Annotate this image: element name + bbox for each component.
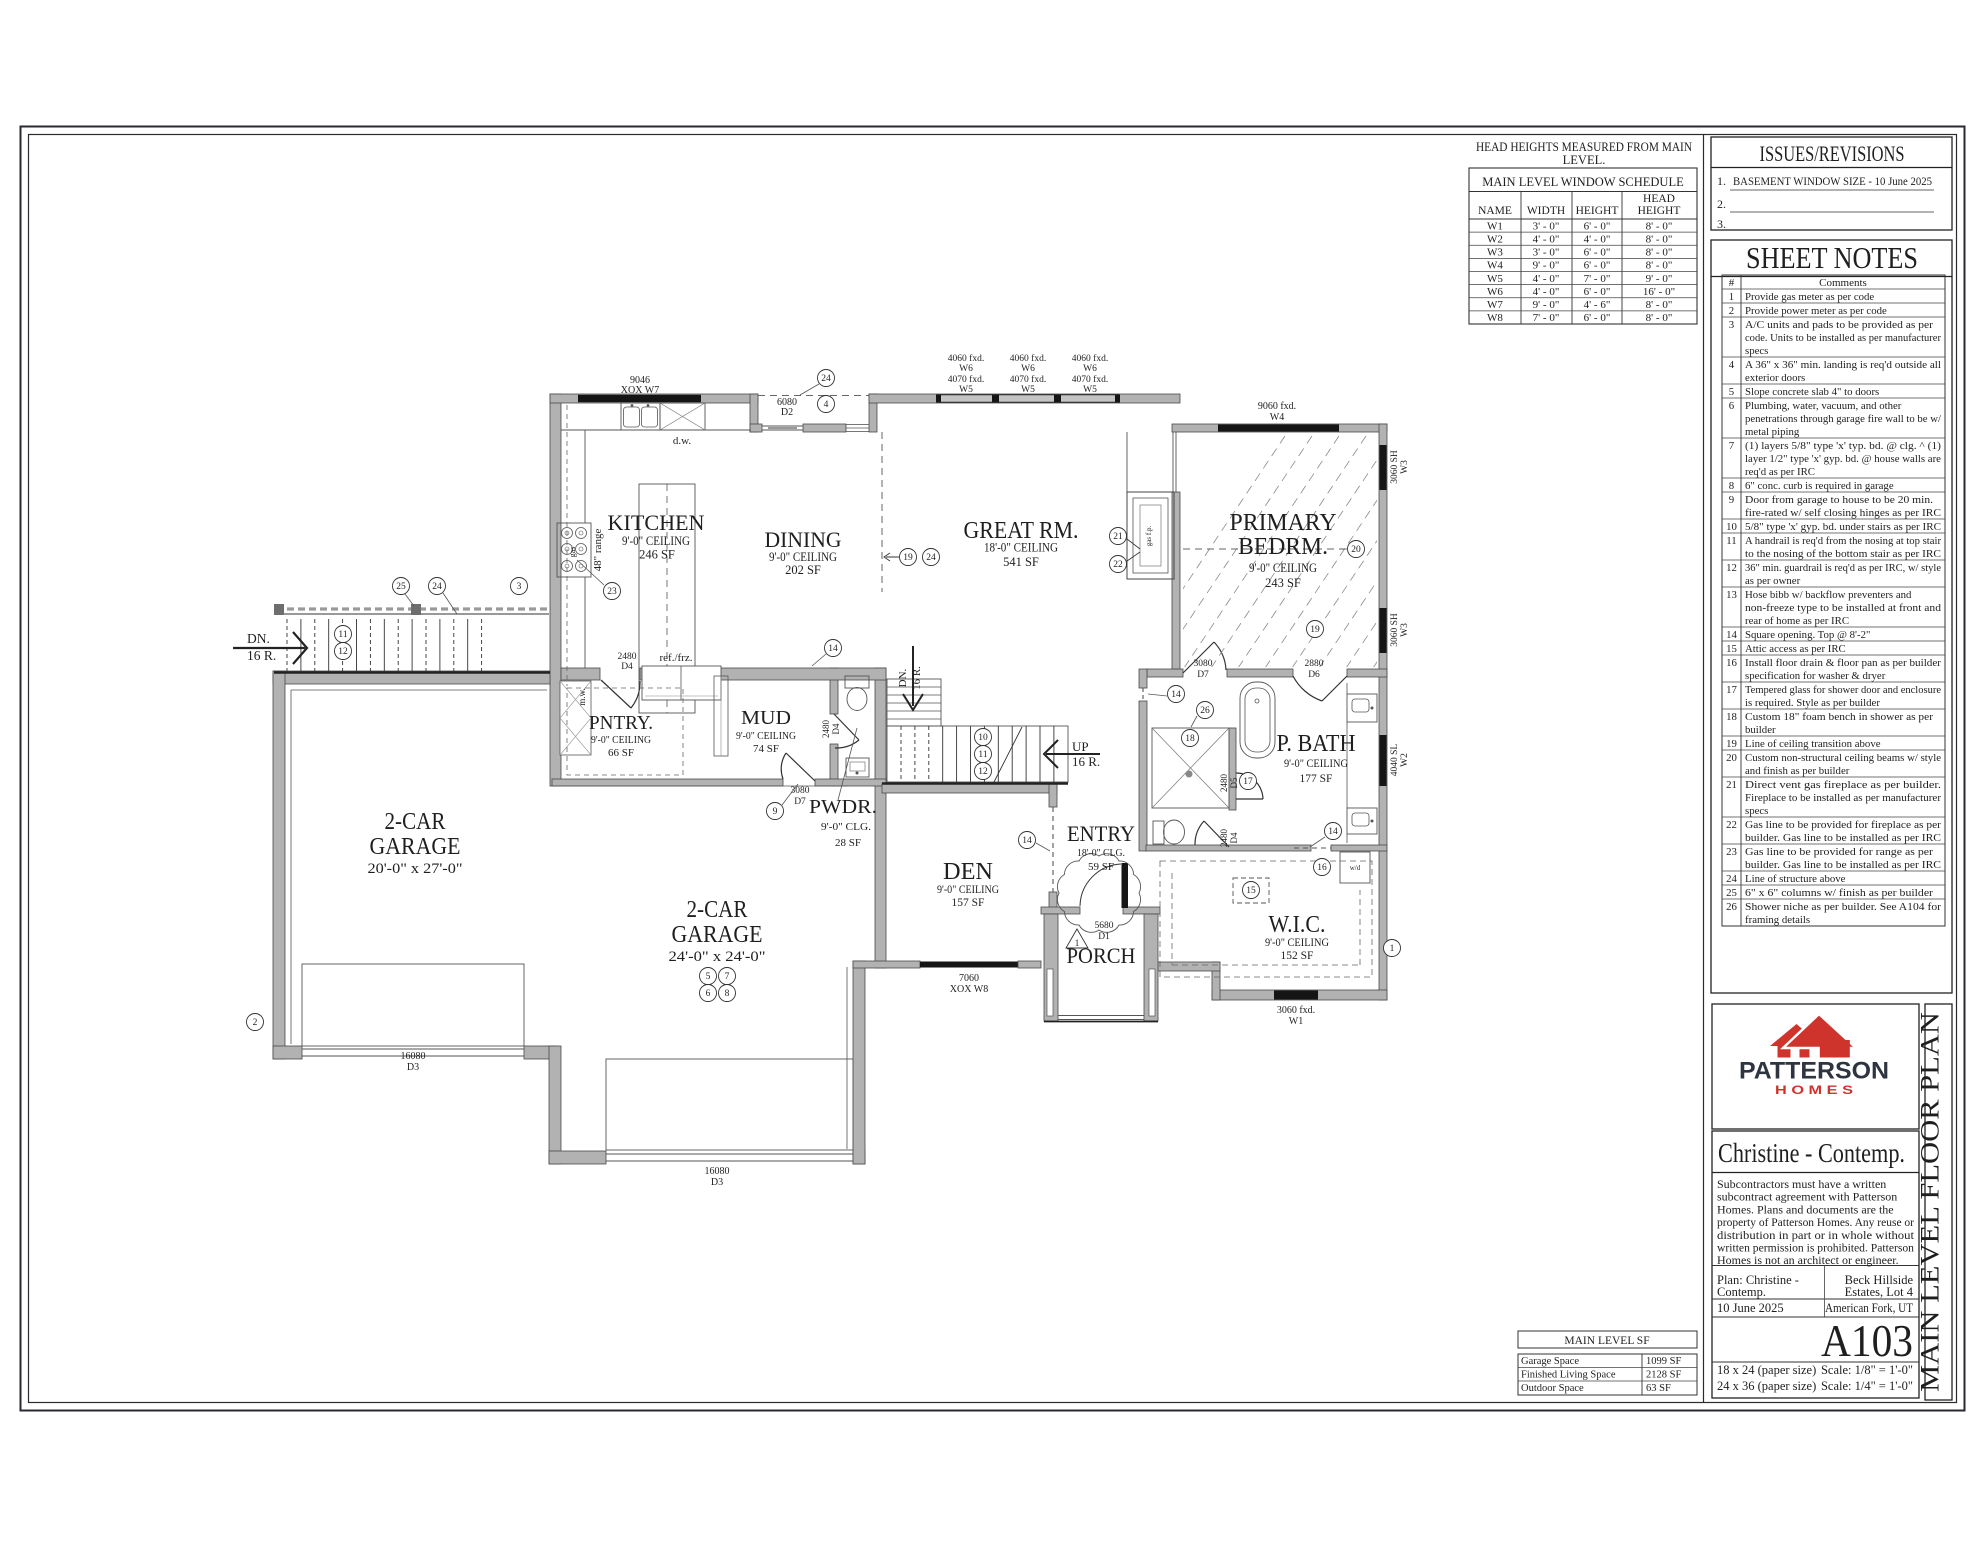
svg-text:BASEMENT WINDOW SIZE - 10 June: BASEMENT WINDOW SIZE - 10 June 2025 [1733, 174, 1932, 188]
svg-text:5/8" type 'x' gyp. bd. under s: 5/8" type 'x' gyp. bd. under stairs as p… [1745, 521, 1941, 533]
svg-text:Provide power meter as per cod: Provide power meter as per code [1745, 305, 1887, 317]
svg-text:to the nosing of the bottom st: to the nosing of the bottom stair as per… [1745, 548, 1941, 560]
svg-text:1: 1 [1390, 944, 1395, 954]
svg-text:specs: specs [1745, 345, 1768, 357]
svg-text:26: 26 [1726, 901, 1737, 913]
svg-text:2480: 2480 [618, 652, 637, 662]
svg-text:1.: 1. [1717, 174, 1726, 188]
svg-text:DEN: DEN [943, 859, 993, 885]
svg-text:2-CAR: 2-CAR [385, 809, 446, 835]
svg-text:D7: D7 [1197, 670, 1209, 680]
svg-text:3.: 3. [1717, 217, 1726, 231]
svg-text:P. BATH: P. BATH [1277, 731, 1356, 757]
svg-text:8' - 0": 8' - 0" [1646, 299, 1673, 311]
svg-text:6' - 0": 6' - 0" [1584, 260, 1611, 272]
svg-text:req'd as per IRC: req'd as per IRC [1745, 466, 1815, 478]
svg-text:HEAD HEIGHTS MEASURED FROM MAI: HEAD HEIGHTS MEASURED FROM MAIN [1476, 140, 1692, 154]
svg-text:7' - 0": 7' - 0" [1584, 273, 1611, 285]
svg-text:W1: W1 [1487, 220, 1503, 232]
svg-text:PATTERSON: PATTERSON [1739, 1058, 1889, 1085]
svg-text:Gas line to be provided for ra: Gas line to be provided for range as per [1745, 846, 1933, 858]
svg-text:6: 6 [706, 989, 711, 999]
svg-text:D4: D4 [621, 662, 633, 672]
svg-text:16080: 16080 [705, 1166, 730, 1177]
svg-text:NAME: NAME [1478, 205, 1512, 217]
svg-text:12: 12 [338, 647, 348, 657]
svg-text:4070 fxd.: 4070 fxd. [1072, 374, 1108, 385]
svg-text:Line of ceiling transition abo: Line of ceiling transition above [1745, 738, 1881, 750]
svg-text:exterior doors: exterior doors [1745, 372, 1805, 384]
svg-text:20: 20 [1726, 752, 1737, 764]
svg-text:Christine - Contemp.: Christine - Contemp. [1718, 1137, 1905, 1168]
svg-text:is required. Style as per buil: is required. Style as per builder [1745, 697, 1880, 709]
svg-text:28 SF: 28 SF [835, 837, 861, 849]
svg-text:Finished Living Space: Finished Living Space [1521, 1370, 1616, 1381]
svg-text:177 SF: 177 SF [1300, 773, 1333, 785]
svg-text:specification for washer & dry: specification for washer & dryer [1745, 670, 1886, 682]
svg-text:W1: W1 [1289, 1016, 1303, 1027]
svg-text:W2: W2 [1400, 753, 1410, 767]
svg-text:8' - 0": 8' - 0" [1646, 247, 1673, 259]
svg-text:4070 fxd.: 4070 fxd. [948, 374, 984, 385]
svg-text:builder: builder [1745, 724, 1776, 736]
svg-text:19: 19 [903, 553, 913, 563]
svg-text:A handrail is req'd from the n: A handrail is req'd from the nosing at t… [1745, 535, 1941, 547]
svg-text:10: 10 [978, 733, 988, 743]
svg-text:D3: D3 [407, 1062, 419, 1073]
svg-text:W.I.C.: W.I.C. [1269, 912, 1326, 938]
svg-text:D6: D6 [1308, 670, 1320, 680]
svg-text:GARAGE: GARAGE [672, 922, 763, 948]
svg-text:24: 24 [1726, 873, 1737, 885]
svg-text:11: 11 [978, 750, 987, 760]
svg-text:25: 25 [396, 582, 406, 592]
svg-text:LEVEL.: LEVEL. [1563, 153, 1606, 167]
svg-text:D2: D2 [781, 407, 793, 418]
svg-text:6' - 0": 6' - 0" [1584, 220, 1611, 232]
svg-text:66 SF: 66 SF [608, 747, 634, 759]
svg-text:Scale: 1/8" = 1'-0": Scale: 1/8" = 1'-0" [1821, 1363, 1913, 1377]
svg-text:1099 SF: 1099 SF [1646, 1356, 1681, 1367]
svg-text:15: 15 [1726, 643, 1737, 655]
svg-text:UP: UP [1072, 739, 1089, 754]
svg-text:9'-0" CLG.: 9'-0" CLG. [821, 821, 871, 833]
svg-text:16' - 0": 16' - 0" [1643, 286, 1675, 298]
svg-text:3060 fxd.: 3060 fxd. [1277, 1005, 1315, 1016]
svg-text:ENTRY: ENTRY [1067, 821, 1135, 846]
svg-text:16080: 16080 [401, 1051, 426, 1062]
svg-text:12: 12 [1726, 562, 1737, 574]
svg-text:9'-0" CEILING: 9'-0" CEILING [622, 534, 690, 548]
svg-text:16 R.: 16 R. [911, 666, 923, 690]
svg-text:9060 fxd.: 9060 fxd. [1258, 401, 1296, 412]
svg-text:#: # [1729, 277, 1735, 289]
svg-text:152 SF: 152 SF [1281, 950, 1314, 962]
svg-text:W2: W2 [1487, 233, 1503, 245]
svg-text:18'-0" CEILING: 18'-0" CEILING [984, 540, 1058, 555]
svg-text:PWDR.: PWDR. [809, 796, 877, 818]
svg-text:builder. Gas line to be instal: builder. Gas line to be installed as per… [1745, 859, 1941, 871]
svg-text:gas f.p.: gas f.p. [1145, 526, 1153, 547]
svg-text:9'-0" CEILING: 9'-0" CEILING [1249, 561, 1317, 575]
svg-text:3080: 3080 [791, 786, 810, 796]
svg-text:2480: 2480 [1219, 829, 1229, 848]
svg-text:11: 11 [1726, 535, 1736, 547]
svg-text:builder. Gas line to be instal: builder. Gas line to be installed as per… [1745, 832, 1941, 844]
svg-text:23: 23 [607, 587, 617, 597]
svg-text:48" range: 48" range [592, 529, 604, 572]
svg-text:4060 fxd.: 4060 fxd. [1010, 353, 1046, 364]
svg-text:W6: W6 [1083, 364, 1097, 374]
svg-text:22: 22 [1726, 819, 1737, 831]
svg-text:16: 16 [1317, 863, 1327, 873]
svg-text:American Fork, UT: American Fork, UT [1825, 1301, 1913, 1315]
svg-text:3: 3 [517, 582, 522, 592]
svg-text:Comments: Comments [1819, 277, 1867, 289]
svg-text:14: 14 [1726, 629, 1737, 641]
svg-text:2480: 2480 [821, 720, 831, 739]
svg-text:7060: 7060 [959, 973, 979, 984]
svg-text:9' - 0": 9' - 0" [1533, 260, 1560, 272]
svg-text:1: 1 [1729, 291, 1734, 303]
svg-text:Plumbing, water, vacuum, and o: Plumbing, water, vacuum, and other [1745, 400, 1902, 412]
svg-text:10: 10 [1726, 521, 1737, 533]
svg-text:9'-0" CEILING: 9'-0" CEILING [1265, 937, 1329, 949]
svg-text:Homes is not an architect or e: Homes is not an architect or engineer. [1717, 1253, 1899, 1267]
svg-text:Custom 18" foam bench in showe: Custom 18" foam bench in shower as per [1745, 711, 1933, 723]
svg-text:36" min. guardrail is req'd as: 36" min. guardrail is req'd as per IRC, … [1745, 562, 1941, 574]
svg-text:HEIGHT: HEIGHT [1638, 205, 1681, 217]
svg-text:5: 5 [1729, 386, 1734, 398]
svg-text:Fireplace to be installed as p: Fireplace to be installed as per manufac… [1745, 792, 1941, 804]
svg-text:246 SF: 246 SF [639, 548, 675, 562]
svg-text:9'-0" CEILING: 9'-0" CEILING [769, 550, 837, 564]
svg-text:4' - 0": 4' - 0" [1533, 286, 1560, 298]
svg-text:4' - 0": 4' - 0" [1584, 233, 1611, 245]
svg-text:6' - 0": 6' - 0" [1584, 312, 1611, 324]
svg-text:WIDTH: WIDTH [1527, 205, 1565, 217]
svg-text:non-freeze type to be installe: non-freeze type to be installed at front… [1745, 602, 1942, 614]
svg-text:4060 fxd.: 4060 fxd. [1072, 353, 1108, 364]
svg-text:W3: W3 [1400, 460, 1410, 474]
svg-text:24: 24 [432, 582, 442, 592]
svg-text:Provide gas meter as per code: Provide gas meter as per code [1745, 291, 1874, 303]
svg-text:Garage Space: Garage Space [1521, 1356, 1579, 1367]
svg-text:layer 1/2" type 'x' gyp. bd. @: layer 1/2" type 'x' gyp. bd. @ house wal… [1745, 453, 1941, 465]
svg-text:W6: W6 [1487, 286, 1503, 298]
svg-text:W3: W3 [1400, 623, 1410, 637]
svg-text:D4: D4 [1229, 832, 1239, 843]
svg-text:12: 12 [978, 767, 988, 777]
svg-text:D4: D4 [831, 723, 841, 734]
svg-text:24: 24 [926, 553, 936, 563]
svg-text:21: 21 [1726, 779, 1737, 791]
svg-text:8' - 0": 8' - 0" [1646, 233, 1673, 245]
svg-text:7: 7 [1729, 440, 1735, 452]
svg-text:26: 26 [1200, 706, 1210, 716]
svg-text:and finish as per builder: and finish as per builder [1745, 765, 1850, 777]
svg-text:9' - 0": 9' - 0" [1646, 273, 1673, 285]
svg-text:Gas line to be provided for fi: Gas line to be provided for fireplace as… [1745, 819, 1941, 831]
svg-text:9'-0" CEILING: 9'-0" CEILING [1284, 758, 1348, 770]
svg-text:3: 3 [1729, 319, 1734, 331]
svg-text:A103: A103 [1821, 1315, 1913, 1366]
svg-text:4040 SL: 4040 SL [1390, 744, 1400, 777]
svg-text:Slope concrete slab 4" to door: Slope concrete slab 4" to doors [1745, 386, 1879, 398]
svg-text:8' - 0": 8' - 0" [1646, 260, 1673, 272]
svg-text:penetrations through garage fi: penetrations through garage fire wall to… [1745, 413, 1941, 425]
svg-text:4060 fxd.: 4060 fxd. [948, 353, 984, 364]
svg-text:74 SF: 74 SF [753, 743, 779, 755]
svg-text:9: 9 [1729, 494, 1734, 506]
svg-text:W5: W5 [1021, 385, 1035, 395]
svg-text:D3: D3 [711, 1177, 723, 1188]
svg-text:13: 13 [1726, 589, 1737, 601]
svg-text:243 SF: 243 SF [1265, 576, 1301, 590]
svg-text:7' - 0": 7' - 0" [1533, 312, 1560, 324]
svg-text:D1: D1 [1098, 932, 1110, 942]
svg-text:2: 2 [253, 1018, 258, 1028]
svg-text:Direct vent gas fireplace as p: Direct vent gas fireplace as per builder… [1745, 779, 1941, 791]
svg-text:17: 17 [1726, 684, 1737, 696]
svg-text:15: 15 [1246, 886, 1256, 896]
svg-text:W4: W4 [1270, 412, 1284, 423]
svg-text:18'-0" CLG.: 18'-0" CLG. [1077, 847, 1125, 859]
svg-text:9' - 0": 9' - 0" [1533, 299, 1560, 311]
svg-text:W5: W5 [1083, 385, 1097, 395]
svg-text:W5: W5 [959, 385, 973, 395]
svg-text:MAIN LEVEL SF: MAIN LEVEL SF [1564, 1335, 1649, 1347]
svg-text:9: 9 [773, 807, 778, 817]
svg-text:Install floor drain & floor pa: Install floor drain & floor pan as per b… [1745, 657, 1941, 669]
svg-text:Estates, Lot 4: Estates, Lot 4 [1845, 1285, 1914, 1299]
svg-text:16: 16 [1726, 657, 1737, 669]
svg-text:20'-0" x 27'-0": 20'-0" x 27'-0" [368, 861, 463, 877]
svg-text:18 x 24 (paper size): 18 x 24 (paper size) [1717, 1363, 1816, 1377]
svg-text:2480: 2480 [1219, 774, 1229, 793]
svg-text:4' - 0": 4' - 0" [1533, 273, 1560, 285]
svg-text:23: 23 [1726, 846, 1737, 858]
svg-text:W5: W5 [1487, 273, 1503, 285]
svg-text:KITCHEN: KITCHEN [608, 510, 705, 535]
svg-text:ref./frz.: ref./frz. [660, 652, 693, 664]
svg-text:6' - 0": 6' - 0" [1584, 286, 1611, 298]
svg-text:3' - 0": 3' - 0" [1533, 247, 1560, 259]
svg-text:Attic access as per IRC: Attic access as per IRC [1745, 643, 1846, 655]
svg-text:9'-0" CEILING: 9'-0" CEILING [937, 884, 999, 896]
svg-text:8: 8 [1729, 480, 1734, 492]
svg-text:7: 7 [725, 972, 730, 982]
svg-text:6" conc. curb is required in g: 6" conc. curb is required in garage [1745, 480, 1894, 492]
svg-text:3080: 3080 [1194, 659, 1213, 669]
svg-text:4: 4 [1729, 359, 1735, 371]
svg-text:63 SF: 63 SF [1646, 1383, 1671, 1394]
svg-text:Hose bibb w/ backflow prevente: Hose bibb w/ backflow preventers and [1745, 589, 1912, 601]
svg-text:10 June 2025: 10 June 2025 [1717, 1301, 1784, 1315]
svg-text:A 36" x 36" min. landing is re: A 36" x 36" min. landing is req'd outsid… [1745, 359, 1941, 371]
svg-text:A/C units and pads to be provi: A/C units and pads to be provided as per [1745, 319, 1933, 331]
svg-text:14: 14 [828, 644, 838, 654]
svg-text:22: 22 [1113, 560, 1123, 570]
svg-text:as per owner: as per owner [1745, 575, 1801, 587]
svg-text:code. Units to be installed as: code. Units to be installed as per manuf… [1745, 332, 1941, 344]
svg-text:Square opening. Top @ 8'-2": Square opening. Top @ 8'-2" [1745, 629, 1870, 641]
svg-text:ISSUES/REVISIONS: ISSUES/REVISIONS [1760, 141, 1905, 166]
svg-text:14: 14 [1171, 690, 1181, 700]
svg-text:BEDRM.: BEDRM. [1238, 534, 1328, 560]
svg-text:HEIGHT: HEIGHT [1576, 205, 1619, 217]
svg-text:DN.: DN. [247, 631, 270, 646]
svg-text:24'-0" x 24'-0": 24'-0" x 24'-0" [669, 949, 766, 965]
svg-text:rear of home as per IRC: rear of home as per IRC [1745, 615, 1849, 627]
svg-text:202 SF: 202 SF [785, 563, 821, 577]
svg-text:11: 11 [338, 630, 347, 640]
svg-text:(1) layers 5/8" type 'x' typ.: (1) layers 5/8" type 'x' typ. bd. @ clg.… [1745, 440, 1941, 452]
svg-text:specs: specs [1745, 805, 1768, 817]
svg-text:Contemp.: Contemp. [1717, 1285, 1766, 1299]
svg-text:25: 25 [1726, 887, 1737, 899]
svg-text:W6: W6 [1021, 364, 1035, 374]
svg-text:PORCH: PORCH [1067, 943, 1136, 968]
svg-text:2.: 2. [1717, 197, 1726, 211]
svg-text:W7: W7 [1487, 299, 1503, 311]
svg-text:14: 14 [1328, 827, 1338, 837]
svg-text:W4: W4 [1487, 260, 1503, 272]
svg-text:4070 fxd.: 4070 fxd. [1010, 374, 1046, 385]
svg-text:3060 SH: 3060 SH [1390, 613, 1400, 647]
svg-text:3060 SH: 3060 SH [1390, 450, 1400, 484]
svg-text:541 SF: 541 SF [1003, 555, 1039, 569]
svg-text:157 SF: 157 SF [952, 897, 985, 909]
svg-text:19: 19 [1310, 625, 1320, 635]
svg-text:Line of structure above: Line of structure above [1745, 873, 1846, 885]
svg-text:w/d: w/d [1350, 864, 1361, 872]
svg-text:W3: W3 [1487, 247, 1503, 259]
svg-text:8: 8 [725, 989, 730, 999]
svg-text:PNTRY.: PNTRY. [589, 712, 653, 734]
svg-text:framing details: framing details [1745, 914, 1810, 926]
svg-text:D5: D5 [1229, 777, 1239, 788]
svg-text:Scale: 1/4" = 1'-0": Scale: 1/4" = 1'-0" [1821, 1379, 1913, 1393]
svg-text:16 R.: 16 R. [247, 648, 276, 663]
svg-text:8' - 0": 8' - 0" [1646, 220, 1673, 232]
svg-text:17: 17 [1243, 777, 1253, 787]
svg-text:18: 18 [1185, 734, 1195, 744]
svg-text:2880: 2880 [1305, 659, 1324, 669]
svg-text:19: 19 [1726, 738, 1737, 750]
svg-text:16 R.: 16 R. [1072, 754, 1100, 769]
svg-text:SHEET NOTES: SHEET NOTES [1746, 240, 1918, 275]
svg-text:m.w.: m.w. [577, 688, 587, 705]
svg-text:Tempered glass for shower door: Tempered glass for shower door and enclo… [1745, 684, 1941, 696]
svg-text:W6: W6 [959, 364, 973, 374]
svg-text:Door from garage to house to b: Door from garage to house to be 20 min. [1745, 494, 1933, 506]
svg-text:MUD: MUD [741, 707, 791, 729]
svg-text:14: 14 [1022, 836, 1032, 846]
svg-text:fire-rated w/ self closing hin: fire-rated w/ self closing hinges as per… [1745, 507, 1941, 519]
svg-text:DN.: DN. [897, 668, 909, 687]
svg-text:4: 4 [824, 400, 829, 410]
svg-text:3' - 0": 3' - 0" [1533, 220, 1560, 232]
svg-text:GARAGE: GARAGE [370, 834, 461, 860]
svg-text:8' - 0": 8' - 0" [1646, 312, 1673, 324]
svg-text:4' - 6": 4' - 6" [1584, 299, 1611, 311]
svg-text:18: 18 [1726, 711, 1737, 723]
svg-text:9'-0" CEILING: 9'-0" CEILING [736, 730, 796, 742]
svg-text:DINING: DINING [765, 527, 842, 552]
svg-text:6" x 6" columns w/ finish as p: 6" x 6" columns w/ finish as per builder [1745, 887, 1933, 899]
svg-text:4' - 0": 4' - 0" [1533, 233, 1560, 245]
svg-text:W8: W8 [1487, 312, 1503, 324]
svg-text:20: 20 [1351, 545, 1361, 555]
svg-text:HEAD: HEAD [1643, 193, 1675, 205]
svg-text:XOX W8: XOX W8 [950, 984, 988, 995]
svg-text:MAIN LEVEL FLOOR PLAN: MAIN LEVEL FLOOR PLAN [1916, 1012, 1945, 1392]
svg-text:MAIN LEVEL WINDOW SCHEDULE: MAIN LEVEL WINDOW SCHEDULE [1482, 175, 1684, 189]
svg-text:2-CAR: 2-CAR [687, 897, 748, 923]
svg-text:6' - 0": 6' - 0" [1584, 247, 1611, 259]
svg-text:24 x 36 (paper size): 24 x 36 (paper size) [1717, 1379, 1816, 1393]
svg-text:XOX W7: XOX W7 [621, 385, 659, 396]
svg-text:9'-0" CEILING: 9'-0" CEILING [591, 734, 651, 746]
svg-text:Shower niche as per builder. S: Shower niche as per builder. See A104 fo… [1745, 901, 1941, 913]
svg-text:D7: D7 [794, 797, 806, 807]
svg-text:Outdoor Space: Outdoor Space [1521, 1383, 1584, 1394]
svg-text:5680: 5680 [1095, 921, 1114, 931]
svg-text:2: 2 [1729, 305, 1734, 317]
svg-text:Custom non-structural ceiling: Custom non-structural ceiling beams w/ s… [1745, 752, 1941, 764]
svg-text:2128 SF: 2128 SF [1646, 1370, 1681, 1381]
svg-text:5: 5 [706, 972, 711, 982]
svg-text:metal piping: metal piping [1745, 426, 1800, 438]
svg-text:59 SF: 59 SF [1088, 861, 1114, 873]
svg-text:d.w.: d.w. [673, 435, 691, 447]
svg-text:PRIMARY: PRIMARY [1230, 510, 1337, 536]
svg-text:gas: gas [568, 547, 577, 558]
svg-text:21: 21 [1113, 532, 1123, 542]
svg-text:6: 6 [1729, 400, 1735, 412]
svg-text:H O M E S: H O M E S [1775, 1083, 1853, 1097]
svg-text:24: 24 [821, 374, 831, 384]
